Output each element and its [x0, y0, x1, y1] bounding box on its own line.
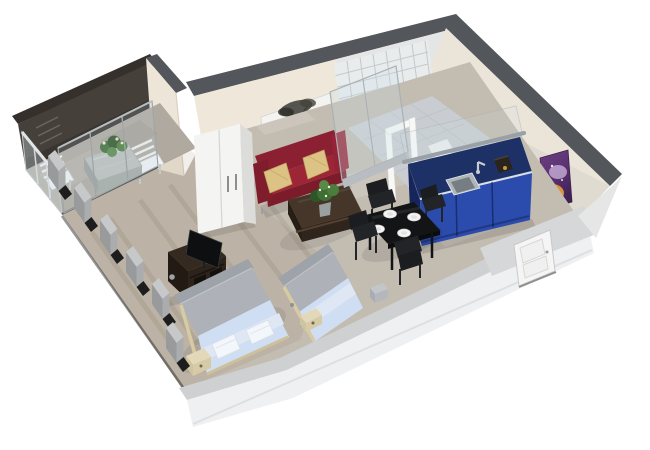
dining-chair: [366, 178, 396, 227]
dining-table: [362, 202, 440, 270]
white-wardrobe: [194, 124, 256, 234]
potted-plant: [310, 180, 339, 217]
bathroom-vanity: [446, 152, 482, 181]
kitchen-faucet: [476, 162, 485, 174]
shower-glass: [330, 66, 410, 188]
back-wall: [186, 14, 470, 142]
apartment-scene: [0, 0, 650, 450]
flat-tv: [186, 230, 222, 268]
speaker-knob: [206, 244, 212, 250]
tv-unit-shadow: [166, 284, 232, 306]
door-knob: [546, 251, 549, 254]
bathroom-tiled-wall: [334, 40, 438, 148]
window-wall-cutaway: [48, 150, 190, 390]
gray-pedestal: [370, 283, 388, 303]
speaker-knob: [169, 274, 175, 280]
coffee-table-shadow: [276, 206, 368, 258]
tv-cabinet: [168, 238, 226, 300]
nightstand: [300, 308, 322, 332]
double-bed: [174, 259, 289, 374]
bed-frame-rail: [284, 287, 314, 341]
single-bed: [278, 244, 363, 342]
kitchen-counter: [408, 137, 532, 246]
bidet: [453, 158, 475, 176]
kitchen-sink: [446, 173, 480, 195]
sliding-glass-doors: [58, 101, 158, 214]
dining-chair: [394, 236, 423, 285]
balcony-table: [84, 144, 142, 193]
partition-wall: [146, 54, 187, 176]
floor-plan-3d-render: [0, 0, 650, 450]
purple-abstract-painting: [540, 150, 572, 210]
coffee-table: [288, 184, 362, 242]
coffee-machine: [494, 156, 513, 173]
right-wall: [430, 14, 622, 222]
wardrobe-shadow: [196, 218, 256, 239]
entrance-wall: [480, 176, 622, 276]
bathroom-glass-partition: [400, 106, 524, 162]
gold-pillow: [303, 150, 329, 179]
balcony-shelf-lines: [36, 117, 62, 144]
glass-railing: [22, 132, 62, 214]
red-sofa: [253, 130, 349, 214]
place-settings: [372, 210, 421, 237]
balcony-back-wall: [12, 54, 160, 170]
balcony-floor: [26, 103, 196, 214]
dining-chair: [348, 210, 378, 260]
front-door: [514, 230, 556, 287]
balcony-chair: [40, 156, 74, 200]
tree-photo-art: [261, 93, 333, 152]
nightstand: [186, 348, 211, 376]
folded-towel: [212, 334, 240, 359]
main-floor: [62, 62, 580, 390]
bathroom-door-frame: [385, 117, 420, 202]
bathroom-floor: [348, 96, 498, 192]
front-wall: [179, 213, 594, 427]
gold-pillow: [264, 163, 292, 193]
double-bed-shadow: [170, 294, 295, 386]
folded-towel: [246, 320, 274, 344]
dining-chair: [420, 184, 446, 228]
balcony-chair: [130, 140, 164, 184]
kitchen-shadow: [418, 219, 536, 254]
bed-frame-rail: [181, 305, 200, 372]
balcony-flowers: [100, 136, 128, 158]
sofa-shadow: [260, 176, 352, 218]
toilet: [427, 139, 475, 176]
dining-shadow: [358, 219, 446, 270]
